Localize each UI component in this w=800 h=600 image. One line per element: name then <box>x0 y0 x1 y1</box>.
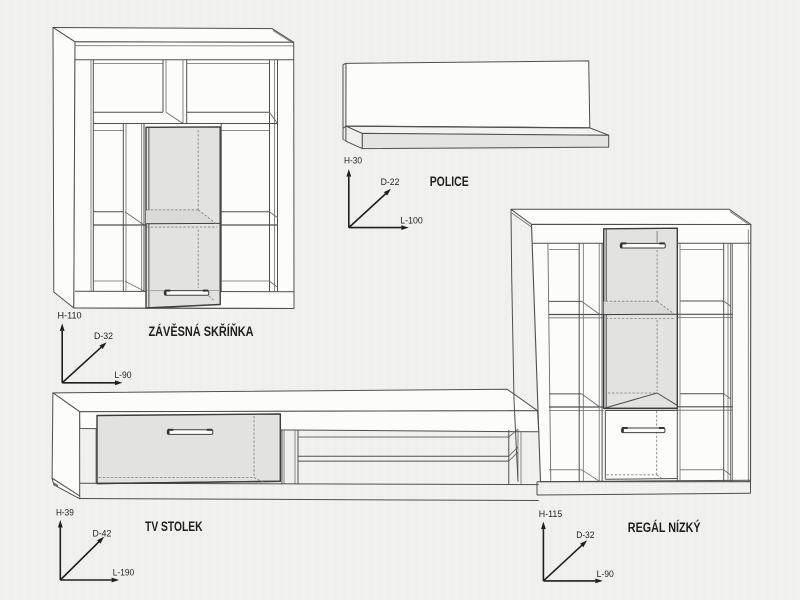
svg-text:L-100: L-100 <box>400 215 423 225</box>
svg-text:H-110: H-110 <box>58 310 82 320</box>
svg-text:H-39: H-39 <box>56 507 74 517</box>
svg-text:POLICE: POLICE <box>430 174 469 189</box>
svg-text:TV STOLEK: TV STOLEK <box>145 519 203 534</box>
svg-text:D-22: D-22 <box>381 177 400 187</box>
svg-text:D-42: D-42 <box>93 528 112 538</box>
svg-text:L-90: L-90 <box>597 569 614 579</box>
svg-text:L-190: L-190 <box>113 567 134 577</box>
svg-text:D-32: D-32 <box>576 530 594 540</box>
svg-text:ZÁVĚSNÁ SKŘÍŇKA: ZÁVĚSNÁ SKŘÍŇKA <box>149 324 254 339</box>
svg-text:H-115: H-115 <box>539 509 563 519</box>
svg-text:H-30: H-30 <box>344 156 362 166</box>
svg-text:D-32: D-32 <box>94 331 113 341</box>
svg-text:REGÁL NÍZKÝ: REGÁL NÍZKÝ <box>628 520 701 535</box>
svg-text:L-90: L-90 <box>114 370 131 380</box>
